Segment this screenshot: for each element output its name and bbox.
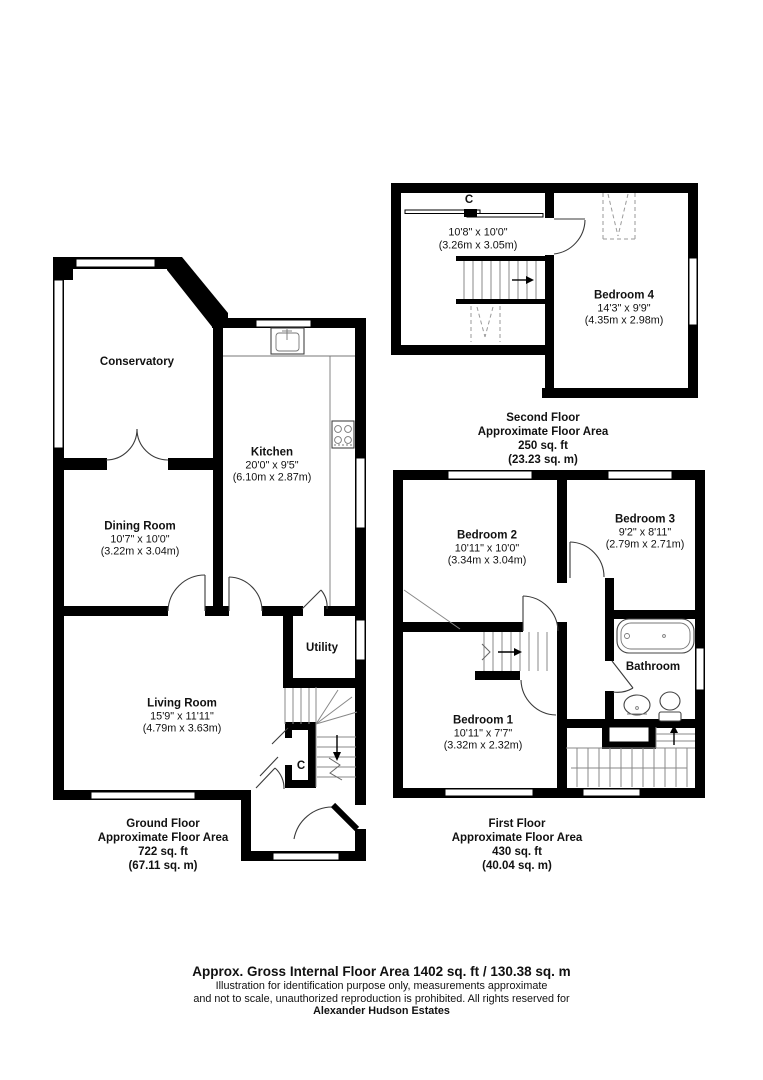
room-dims-imperial: 10'11" x 7'7" [444,727,523,740]
stair-direction-arrow [512,276,534,284]
room-dims-metric: (3.34m x 3.04m) [448,554,527,567]
sf-doors [554,219,585,254]
room-dims-imperial: 10'8" x 10'0" [439,227,518,240]
floor-title: First Floor [452,817,583,831]
room-label-living-room: Living Room 15'9" x 11'11" (4.79m x 3.63… [143,697,222,735]
room-name: Bedroom 1 [444,714,523,727]
floor-area-metric: (40.04 sq. m) [452,859,583,873]
ground-floor-plan [53,257,366,861]
floor-title: Second Floor [478,411,609,425]
room-label-bedroom1: Bedroom 1 10'11" x 7'7" (3.32m x 2.32m) [444,714,523,752]
room-dims-metric: (2.79m x 2.71m) [606,538,685,551]
floor-area-metric: (23.23 sq. m) [478,453,609,467]
room-label-bedroom4: Bedroom 4 14'3" x 9'9" (4.35m x 2.98m) [585,289,664,327]
room-name: Bedroom 4 [585,289,664,302]
room-name: Bedroom 2 [448,529,527,542]
floor-subtitle: Approximate Floor Area [98,831,229,845]
gross-area-title: Approx. Gross Internal Floor Area 1402 s… [0,963,763,980]
room-label-bedroom2: Bedroom 2 10'11" x 10'0" (3.34m x 3.04m) [448,529,527,567]
company-name: Alexander Hudson Estates [0,1005,763,1018]
room-name: Dining Room [101,520,180,533]
room-label-kitchen: Kitchen 20'0" x 9'5" (6.10m x 2.87m) [233,446,312,484]
room-label-cupboard-second: C [465,194,473,206]
room-dims-imperial: 20'0" x 9'5" [233,459,312,472]
room-dims-imperial: 9'2" x 8'11" [606,526,685,539]
floor-subtitle: Approximate Floor Area [478,425,609,439]
room-name: Living Room [143,697,222,710]
floor-area-metric: (67.11 sq. m) [98,859,229,873]
wardrobe-symbol [603,193,635,240]
bathtub-icon [617,619,694,653]
room-label-dining-room: Dining Room 10'7" x 10'0" (3.22m x 3.04m… [101,520,180,558]
room-name: Bedroom 3 [606,513,685,526]
room-dims-metric: (3.32m x 2.32m) [444,739,523,752]
disclaimer-line2: and not to scale, unauthorized reproduct… [0,993,763,1006]
footer-disclaimer: Approx. Gross Internal Floor Area 1402 s… [0,963,763,1018]
room-dims-imperial: 15'9" x 11'11" [143,710,222,723]
toilet-icon [659,692,681,721]
floor-area-imperial: 722 sq. ft [98,845,229,859]
floor-title: Ground Floor [98,817,229,831]
room-dims-metric: (6.10m x 2.87m) [233,471,312,484]
floor-area-imperial: 250 sq. ft [478,439,609,453]
room-label-utility: Utility [306,642,338,654]
basin-icon [624,695,650,715]
room-label-bedroom3: Bedroom 3 9'2" x 8'11" (2.79m x 2.71m) [606,513,685,551]
floor-area-imperial: 430 sq. ft [452,845,583,859]
floorplan-page: Conservatory Kitchen 20'0" x 9'5" (6.10m… [0,0,763,1080]
room-label-bathroom: Bathroom [626,661,680,673]
ground-floor-label: Ground Floor Approximate Floor Area 722 … [98,817,229,873]
gf-windows [54,259,365,860]
room-label-cupboard-ground: C [297,760,305,772]
second-floor-label: Second Floor Approximate Floor Area 250 … [478,411,609,467]
room-label-conservatory: Conservatory [100,356,174,369]
first-floor-label: First Floor Approximate Floor Area 430 s… [452,817,583,873]
hob-icon [332,421,354,448]
disclaimer-line1: Illustration for identification purpose … [0,980,763,993]
room-dims-metric: (4.79m x 3.63m) [143,722,222,735]
sf-cupboard-front [405,209,543,217]
room-dims-imperial: 14'3" x 9'9" [585,302,664,315]
room-label-landing: 10'8" x 10'0" (3.26m x 3.05m) [439,227,518,252]
room-name: Kitchen [233,446,312,459]
gf-cupboard-walls [285,722,316,788]
sf-staircase [456,256,545,342]
gf-staircase [285,687,357,787]
kitchen-sink-icon [271,328,304,354]
room-dims-metric: (3.22m x 3.04m) [101,545,180,558]
floor-subtitle: Approximate Floor Area [452,831,583,845]
room-dims-metric: (4.35m x 2.98m) [585,314,664,327]
ff-staircase [482,632,547,671]
ff-doors [521,542,633,715]
room-dims-metric: (3.26m x 3.05m) [439,239,518,252]
room-dims-imperial: 10'11" x 10'0" [448,542,527,555]
room-dims-imperial: 10'7" x 10'0" [101,533,180,546]
room-name: Conservatory [100,356,174,369]
